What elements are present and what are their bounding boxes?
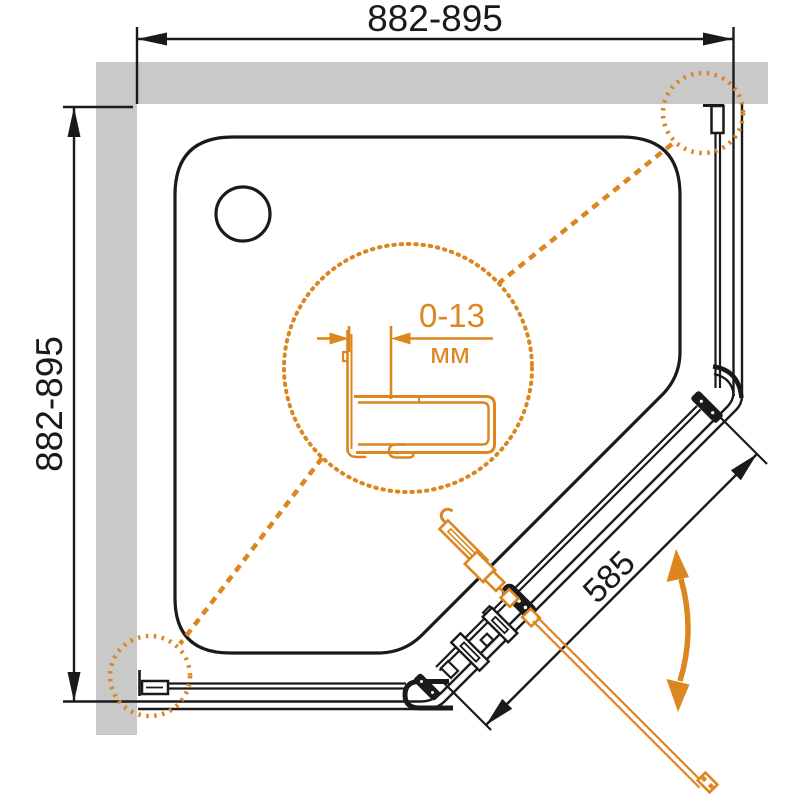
detail-view: 0-13 мм — [110, 73, 743, 716]
fixed-panel-bottom — [140, 670, 407, 696]
drain-circle — [216, 187, 270, 241]
arrow-left-icon — [137, 33, 167, 46]
detail-arrow-left-icon — [391, 333, 411, 345]
top-wall — [96, 62, 768, 104]
swing-arrow-icon — [667, 549, 690, 712]
shower-enclosure-diagram: 882-895 882-895 — [0, 0, 800, 800]
profile-detail-drawing: 0-13 мм — [317, 297, 495, 458]
diagram-canvas: 882-895 882-895 — [0, 0, 800, 800]
adjustment-range-label: 0-13 — [419, 297, 485, 334]
left-wall — [96, 62, 137, 735]
magnet-profiles — [441, 606, 517, 678]
detail-circle — [284, 244, 532, 492]
walls — [96, 62, 768, 735]
arrow-right-icon — [703, 33, 733, 46]
adjustment-unit-label: мм — [430, 338, 470, 370]
arrow-up-icon — [68, 107, 81, 137]
hinge-arc — [713, 367, 742, 399]
frame-rim — [63, 27, 742, 709]
top-dimension-label: 882-895 — [367, 0, 503, 39]
detail-arrow-right-icon — [330, 333, 350, 345]
open-door-end-cap — [698, 773, 718, 793]
wall-bracket-right — [712, 106, 724, 133]
left-dimension-label: 882-895 — [29, 336, 70, 472]
arrow-down-icon — [68, 672, 81, 702]
door-dimension-label: 585 — [576, 544, 643, 611]
fixed-panel-right — [703, 106, 724, 389]
